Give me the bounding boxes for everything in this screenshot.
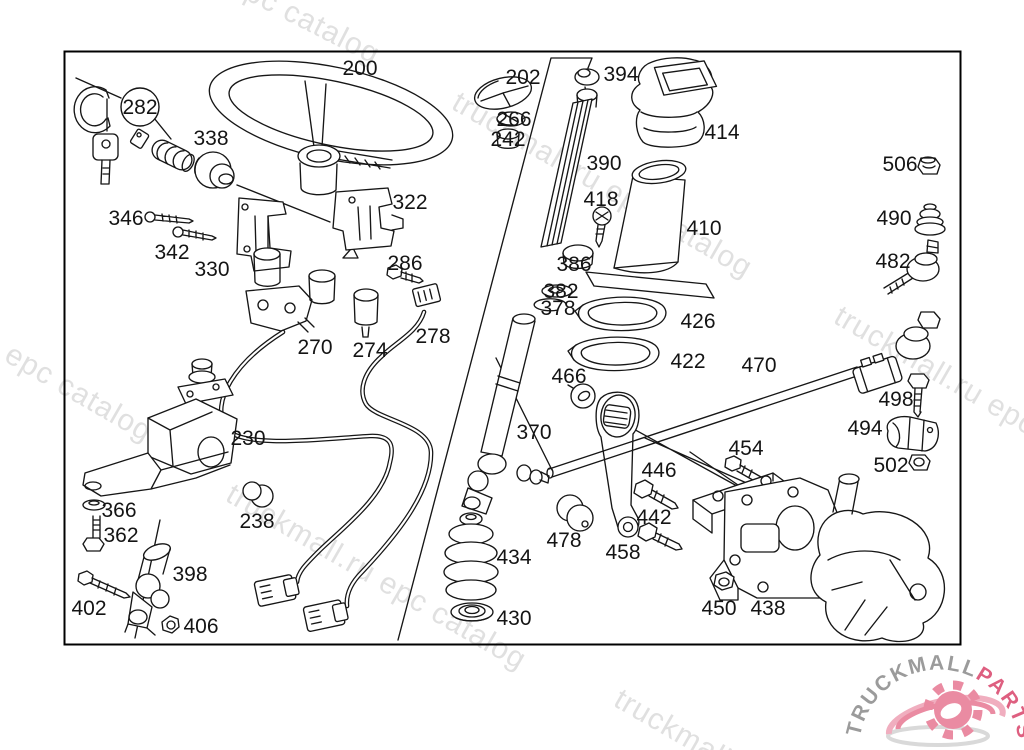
part-label-230: 230 (230, 427, 265, 450)
ring-430-drawing (451, 603, 493, 621)
part-label-466: 466 (551, 365, 586, 388)
nut-506-drawing (918, 157, 940, 174)
part-label-438: 438 (750, 597, 785, 620)
part-label-442: 442 (636, 506, 671, 529)
part-label-478: 478 (546, 529, 581, 552)
watermark-text: truckmall.ru epc catalog (0, 249, 158, 448)
part-label-342: 342 (154, 241, 189, 264)
shaft-370-drawing (462, 314, 549, 514)
part-label-282: 282 (122, 96, 157, 119)
screw-342-drawing (173, 227, 216, 240)
contact-278-drawing (412, 283, 441, 307)
part-label-398: 398 (172, 563, 207, 586)
part-label-410: 410 (686, 217, 721, 240)
part-label-450: 450 (701, 597, 736, 620)
part-label-494: 494 (847, 417, 882, 440)
part-label-406: 406 (183, 615, 218, 638)
part-label-378: 378 (540, 297, 575, 320)
part-label-238: 238 (239, 510, 274, 533)
part-label-366: 366 (101, 499, 136, 522)
nut-450-drawing (714, 572, 734, 590)
parts-diagram-canvas: truckmall.ru epc catalog truckmall.ru ep… (0, 0, 1024, 750)
clamp-494-drawing (887, 417, 938, 451)
part-label-470: 470 (741, 354, 776, 377)
pitman-arm-458-drawing (596, 392, 639, 537)
part-label-370: 370 (516, 421, 551, 444)
part-label-330: 330 (194, 258, 229, 281)
part-label-394: 394 (603, 63, 638, 86)
part-label-200: 200 (342, 57, 377, 80)
key-blank-drawing (130, 129, 150, 149)
truckmallparts-logo: TRUCKMALLPARTS (842, 651, 1024, 745)
steering-wheel-drawing (200, 42, 462, 194)
part-label-278: 278 (415, 325, 450, 348)
part-label-446: 446 (641, 459, 676, 482)
part-label-242: 242 (490, 128, 525, 151)
bellows-434-drawing (444, 513, 498, 600)
part-label-338: 338 (193, 127, 228, 150)
part-label-422: 422 (670, 350, 705, 373)
part-label-426: 426 (680, 310, 715, 333)
part-label-346: 346 (108, 207, 143, 230)
part-label-454: 454 (728, 437, 763, 460)
nut-502-drawing (909, 455, 930, 470)
part-label-482: 482 (875, 250, 910, 273)
part-label-418: 418 (583, 188, 618, 211)
part-label-434: 434 (496, 546, 531, 569)
screw-418-drawing (593, 207, 611, 247)
bolt-402-drawing (78, 571, 130, 598)
watermark-text: truckmall.ru epc catalog (447, 85, 759, 284)
watermark-text: truckmall.ru epc catalog (67, 0, 386, 71)
part-label-458: 458 (605, 541, 640, 564)
grommet-478-drawing (557, 495, 593, 531)
cover-426-drawing (575, 297, 666, 330)
part-label-430: 430 (496, 607, 531, 630)
part-label-498: 498 (878, 388, 913, 411)
part-label-490: 490 (876, 207, 911, 230)
part-label-274: 274 (352, 339, 387, 362)
lock-cylinder-drawing (149, 137, 197, 174)
circlip-drawing (74, 87, 110, 133)
part-label-386: 386 (556, 253, 591, 276)
part-label-270: 270 (297, 336, 332, 359)
part-label-362: 362 (103, 524, 138, 547)
part-label-506: 506 (882, 153, 917, 176)
part-label-414: 414 (704, 121, 739, 144)
part-label-202: 202 (505, 66, 540, 89)
bolt-446-drawing (634, 480, 678, 509)
ignition-switch-drawing (195, 152, 234, 188)
part-label-322: 322 (392, 191, 427, 214)
sensor-274-drawing (354, 289, 378, 337)
part-label-402: 402 (71, 597, 106, 620)
logo-swirl-gray (888, 727, 988, 745)
nut-406-drawing (162, 616, 179, 633)
part-label-286: 286 (387, 252, 422, 275)
screw-346-drawing (145, 212, 193, 223)
boot-490-drawing (915, 204, 945, 235)
key-drawing (93, 134, 118, 184)
part-label-390: 390 (586, 152, 621, 175)
part-label-502: 502 (873, 454, 908, 477)
